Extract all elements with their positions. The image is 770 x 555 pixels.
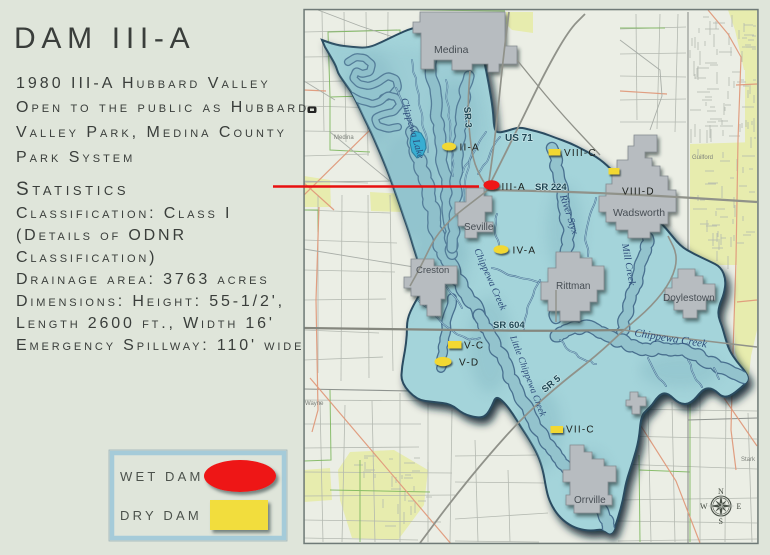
svg-text:E: E: [737, 502, 742, 511]
svg-text:V-D: V-D: [459, 358, 479, 369]
svg-text:Doylestown: Doylestown: [663, 293, 715, 304]
svg-text:Rittman: Rittman: [556, 281, 590, 292]
svg-text:Creston: Creston: [416, 265, 449, 276]
svg-text:VII-C: VII-C: [566, 425, 595, 436]
svg-text:Wadsworth: Wadsworth: [613, 207, 665, 219]
svg-text:Medina: Medina: [434, 44, 469, 56]
svg-text:US 71: US 71: [505, 133, 533, 144]
svg-text:Orrville: Orrville: [574, 495, 606, 506]
svg-text:SR 224: SR 224: [535, 182, 567, 193]
svg-text:Medina: Medina: [334, 135, 354, 141]
svg-text:VIII-C: VIII-C: [564, 148, 597, 159]
svg-text:IV-A: IV-A: [513, 246, 537, 257]
svg-text:WET DAM: WET DAM: [120, 469, 204, 484]
svg-text:III-A: III-A: [502, 182, 526, 193]
svg-text:SR 3: SR 3: [461, 106, 473, 128]
svg-text:SR 604: SR 604: [493, 320, 525, 331]
svg-text:VIII-D: VIII-D: [622, 187, 655, 198]
svg-text:Seville: Seville: [464, 222, 494, 233]
svg-text:Stark: Stark: [741, 457, 756, 463]
svg-text:Guilford: Guilford: [692, 155, 713, 161]
svg-text:DRY DAM: DRY DAM: [120, 508, 202, 523]
svg-text:Wayne: Wayne: [305, 401, 324, 407]
svg-text:II-A: II-A: [460, 143, 480, 154]
svg-text:V-C: V-C: [464, 341, 484, 352]
svg-text:S: S: [719, 517, 723, 526]
svg-text:W: W: [700, 502, 708, 511]
svg-text:N: N: [718, 487, 724, 496]
